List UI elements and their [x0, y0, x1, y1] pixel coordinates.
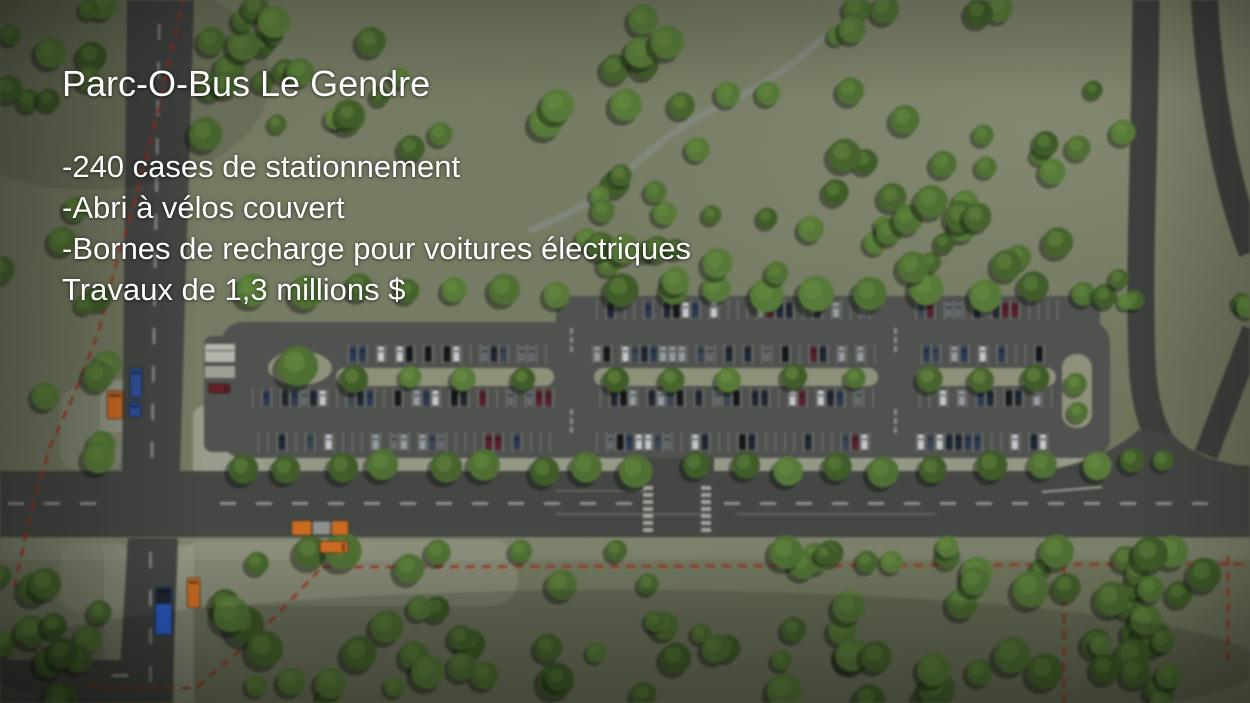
site-plan-scene	[0, 0, 1250, 703]
detail-parking-spaces: -240 cases de stationnement	[62, 146, 691, 187]
aerial-rendering: Parc-O-Bus Le Gendre -240 cases de stati…	[0, 0, 1250, 703]
site-plan-svg	[0, 0, 1250, 703]
detail-cost: Travaux de 1,3 millions $	[62, 269, 691, 310]
facility-details: -240 cases de stationnement -Abri à vélo…	[62, 146, 691, 310]
detail-bike-shelter: -Abri à vélos couvert	[62, 187, 691, 228]
facility-title: Parc-O-Bus Le Gendre	[62, 64, 430, 104]
detail-charging-stations: -Bornes de recharge pour voitures électr…	[62, 228, 691, 269]
